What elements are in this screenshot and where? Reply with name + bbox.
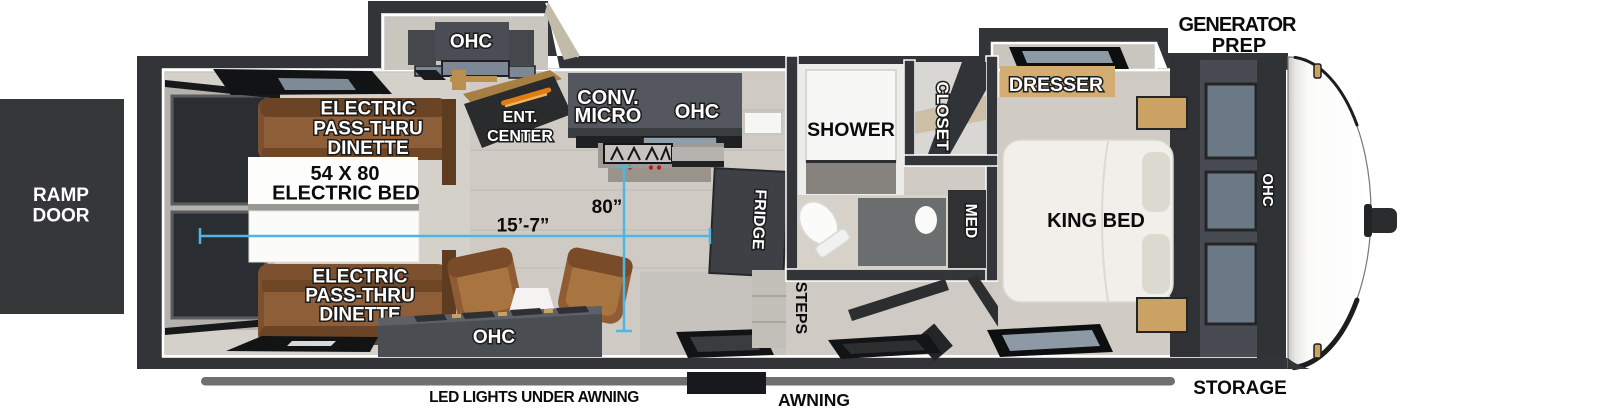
svg-text:80”: 80” bbox=[592, 197, 623, 218]
svg-text:ENT.: ENT. bbox=[503, 109, 538, 126]
svg-text:GENERATOR: GENERATOR bbox=[1179, 14, 1297, 36]
svg-text:ELECTRIC BED: ELECTRIC BED bbox=[272, 183, 420, 205]
svg-text:STEPS: STEPS bbox=[792, 282, 809, 335]
svg-text:CLOSET: CLOSET bbox=[933, 82, 952, 152]
svg-text:FRIDGE: FRIDGE bbox=[749, 189, 769, 251]
svg-text:STORAGE: STORAGE bbox=[1193, 378, 1287, 399]
svg-text:PREP: PREP bbox=[1212, 35, 1266, 57]
svg-text:OHC: OHC bbox=[675, 101, 719, 123]
svg-text:15’-7”: 15’-7” bbox=[497, 216, 550, 237]
svg-text:DRESSER: DRESSER bbox=[1009, 74, 1103, 96]
svg-text:KING BED: KING BED bbox=[1047, 210, 1145, 232]
svg-text:MED: MED bbox=[962, 204, 979, 238]
svg-text:OHC: OHC bbox=[1259, 173, 1276, 207]
svg-text:DINETTE: DINETTE bbox=[327, 138, 408, 159]
svg-text:CENTER: CENTER bbox=[487, 128, 553, 145]
svg-text:DOOR: DOOR bbox=[33, 206, 90, 227]
svg-text:ELECTRIC: ELECTRIC bbox=[321, 99, 416, 120]
svg-text:AWNING: AWNING bbox=[778, 390, 850, 408]
svg-text:RAMP: RAMP bbox=[33, 185, 89, 206]
svg-text:LED LIGHTS UNDER AWNING: LED LIGHTS UNDER AWNING bbox=[429, 389, 639, 406]
svg-text:PASS-THRU: PASS-THRU bbox=[305, 286, 414, 307]
svg-text:PASS-THRU: PASS-THRU bbox=[313, 119, 422, 140]
svg-text:ELECTRIC: ELECTRIC bbox=[313, 267, 408, 288]
svg-text:SHOWER: SHOWER bbox=[807, 119, 895, 141]
svg-text:OHC: OHC bbox=[473, 327, 516, 348]
svg-text:MICRO: MICRO bbox=[575, 105, 642, 127]
svg-text:OHC: OHC bbox=[450, 32, 493, 53]
